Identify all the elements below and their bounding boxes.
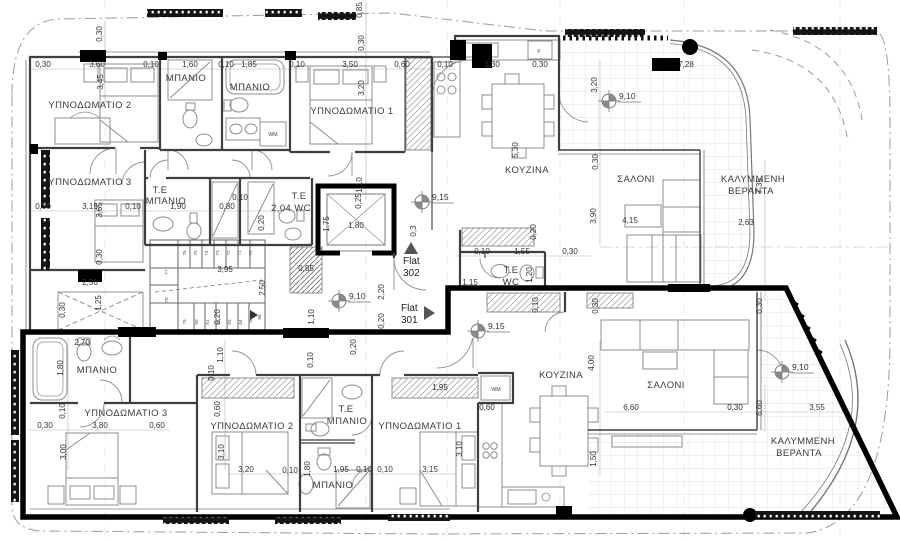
dimension-label: 3,60 [89,60,105,69]
dimension-label: 0,30 [35,60,51,69]
dimension-label: 3,65 [95,202,104,218]
dimension-label: 5,30 [511,142,520,158]
room-label: Τ.Ε [153,185,168,196]
dimension-label: 2,50 [258,280,267,296]
dimension-label: 3,20 [238,465,254,474]
dimension-label: 1,50 [589,451,598,467]
dimension-label: 1,95 [333,465,349,474]
dimension-label: 0,85 [355,2,364,18]
dimension-label: 3,20 [590,77,599,93]
stair-step-number: 73 [215,250,220,256]
stair-step-number: 86 [257,314,262,320]
dimension-label: 4,00 [587,355,596,371]
stair-step-number: 84 [238,319,243,325]
dimension-label: 1,90 [170,202,186,211]
room-label: WC [503,277,520,288]
room-label: ΜΠΑΝΙΟ [77,365,117,376]
flat-name: Flat [403,256,420,267]
dimension-label: 0,10 [218,60,234,69]
dimension-label: 1,85 [241,60,257,69]
room-label: ΣΑΛΟΝΙ [617,174,655,185]
dimension-label: 6,60 [623,403,639,412]
dimension-label: 3,20 [357,80,366,96]
room-label: Τ.Ε [339,404,354,415]
dimension-label: 1,25 [94,295,103,311]
dimension-label: 0,10 [143,60,159,69]
dimension-label: 2,50 [82,278,98,287]
dimension-label: 0,20 [529,224,538,240]
room-label: ΒΕΡΑΝΤΑ [776,448,822,459]
dimension-label: 3,15 [422,465,438,474]
dimension-label: 2,70 [74,338,90,347]
dimension-label: 7,28 [678,60,694,69]
dimension-label: 0,30 [591,298,600,314]
room-label: ΥΠΝΟΔΩΜΑΤΙΟ 2 [48,100,131,111]
dimension-label: 3,95 [217,265,233,274]
flat-direction-right-icon [424,306,435,320]
dimension-label: 3,90 [589,208,598,224]
stair-step-number: 72 [226,250,231,256]
dimension-label: 1,80 [348,221,364,230]
room-label: ΥΠΝΟΔΩΜΑΤΙΟ 1 [310,106,393,117]
dimension-label: 0,25 [354,193,363,209]
dimension-label: 3,10 [217,444,226,460]
dimension-label: 1,80 [56,360,65,376]
dimension-label: 0,60 [479,403,495,412]
room-label: ΥΠΝΟΔΩΜΑΤΙΟ 2 [210,421,293,432]
level-marker: 9,15 [467,320,510,342]
room-label: Τ.Ε [504,265,519,276]
dimension-label: 0,10 [289,60,305,69]
dimension-label: 0,10 [125,202,141,211]
floor-plan-svg: ΥΠΝΟΔΩΜΑΤΙΟ 2ΜΠΑΝΙΟΜΠΑΝΙΟΥΠΝΟΔΩΜΑΤΙΟ 1ΚΟ… [0,0,900,540]
room-label: ΥΠΝΟΔΩΜΑΤΙΟ 3 [48,177,131,188]
dimension-label: 0,30 [95,26,104,42]
appliance-label: WM [491,387,500,393]
veranda-tiles [560,42,893,515]
dimension-label: 0,10 [306,352,315,368]
room-label: ΚΑΛΥΜΜΕΝΗ [771,436,835,447]
dimension-label: 1,10 [307,309,316,325]
dimension-label: 0,30 [755,298,764,314]
stair-step-number: 75 [193,250,198,256]
dimension-label: 0,10 [437,60,453,69]
dimension-label: 3,30 [484,60,500,69]
dimension-label: 0,10 [474,247,490,256]
dimension-label: 0,10 [207,365,216,381]
room-label: ΜΠΑΝΙΟ [230,82,270,93]
room-label: ΣΑΛΟΝΙ [647,380,685,391]
flat-number: 301 [401,315,418,326]
stair-step-number: 70 [248,250,253,256]
room-label: ΒΕΡΑΝΤΑ [728,186,774,197]
dimension-label: 3,10 [455,441,464,457]
stair-step-number: 78 [164,297,169,303]
stair-step-number: 74 [204,250,209,256]
dimension-label: 0,10 [58,403,67,419]
flat-label-302: Flat302 [403,242,420,279]
dimension-label: 1,15 [462,278,478,287]
appliance-label: WM [268,132,277,138]
room-label: ΜΠΑΝΙΟ [327,416,367,427]
dimension-label: 3,00 [59,444,68,460]
dimension-label: 1,10 [216,347,225,363]
dimension-label: 0,30 [35,202,51,211]
room-label: ΜΠΑΝΙΟ [313,480,353,491]
room-label: ΜΠΑΝΙΟ [166,73,206,84]
dimension-label: 1,20 [525,267,534,283]
stair-step-number: 83 [227,319,232,325]
dimension-label: 0,60 [394,60,410,69]
dimension-label: 0,30 [562,247,578,256]
dimension-label: 0,10 [282,466,298,475]
dimension-label: 0,20 [349,339,358,355]
appliance-label: F [537,49,540,55]
dimension-label: 0,10 [377,465,393,474]
dimension-label: 0,3 [409,225,418,237]
level-value: 9,10 [349,291,366,301]
dimension-label: 1,80 [303,461,312,477]
dimension-label: 4,15 [622,216,638,225]
stair-step-number: 85 [248,317,253,323]
dimension-label: 1,95 [432,383,448,392]
dimension-label: 6,60 [755,400,764,416]
dimension-label: 1,55 [514,247,530,256]
stair-step-number: 71 [237,250,242,256]
dimension-label: 0,10 [531,297,540,313]
dimension-label: 2,63 [738,218,754,227]
dimension-label: 7,35 [755,178,764,194]
dimension-label: 0,80 [219,202,235,211]
dimension-label: 0,10 [232,193,248,202]
dimension-label: 0,30 [58,302,67,318]
room-label: ΥΠΝΟΔΩΜΑΤΙΟ 3 [84,408,167,419]
dimension-label: 3,55 [809,403,825,412]
dimension-label: 1,60 [182,60,198,69]
room-label: ΚΟΥΖΙΝΑ [539,370,583,381]
stair-step-number: 80 [194,319,199,325]
stair-step-number: 76 [182,250,187,256]
room-label: ΥΠΝΟΔΩΜΑΤΙΟ 1 [378,421,461,432]
room-label: Τ.Ε [292,191,307,202]
dimension-label: 0,60 [149,421,165,430]
dimension-label: 3,50 [342,60,358,69]
level-value: 9,15 [488,321,505,331]
stair-step-number: 77 [164,269,169,275]
dimension-label: 0,10 [356,465,372,474]
dimension-label: 1,10 [355,177,364,193]
stair-step-number: 81 [205,319,210,325]
dimension-label: 0,30 [37,421,53,430]
dimension-label: 0,30 [357,35,366,51]
dimension-label: 0,30 [591,154,600,170]
flat-number: 302 [403,268,420,279]
dimension-label: 0,30 [727,403,743,412]
dimension-label: 3,45 [96,74,105,90]
room-label: 2,04 WC [271,203,311,214]
room-label: ΚΑΛΥΜΜΕΝΗ [721,174,785,185]
dimension-label: 0,60 [213,401,222,417]
level-value: 9,10 [792,362,809,372]
dimension-label: 2,20 [377,284,386,300]
dimension-label: 1,75 [322,216,331,232]
flat-label-301: Flat301 [401,303,435,326]
room-label: ΚΟΥΖΙΝΑ [505,165,549,176]
flat-direction-up-icon [404,242,418,254]
flat-name: Flat [401,303,418,314]
dimension-label: 0,20 [257,215,266,231]
dimension-label: 3,80 [92,421,108,430]
stair-step-number: 79 [182,319,187,325]
dimension-label: 0,30 [95,249,104,265]
dimension-label: 0,20 [377,313,386,329]
level-marker: 9,10 [328,290,371,312]
level-value: 9,10 [619,91,636,101]
level-value: 9,15 [432,192,449,202]
dimension-label: 0,85 [298,264,314,273]
floor-plan-canvas: ΥΠΝΟΔΩΜΑΤΙΟ 2ΜΠΑΝΙΟΜΠΑΝΙΟΥΠΝΟΔΩΜΑΤΙΟ 1ΚΟ… [0,0,900,540]
dimension-label: 0,30 [532,60,548,69]
flat-labels-layer: Flat302Flat301 [401,242,435,326]
stair-step-number: 82 [216,319,221,325]
